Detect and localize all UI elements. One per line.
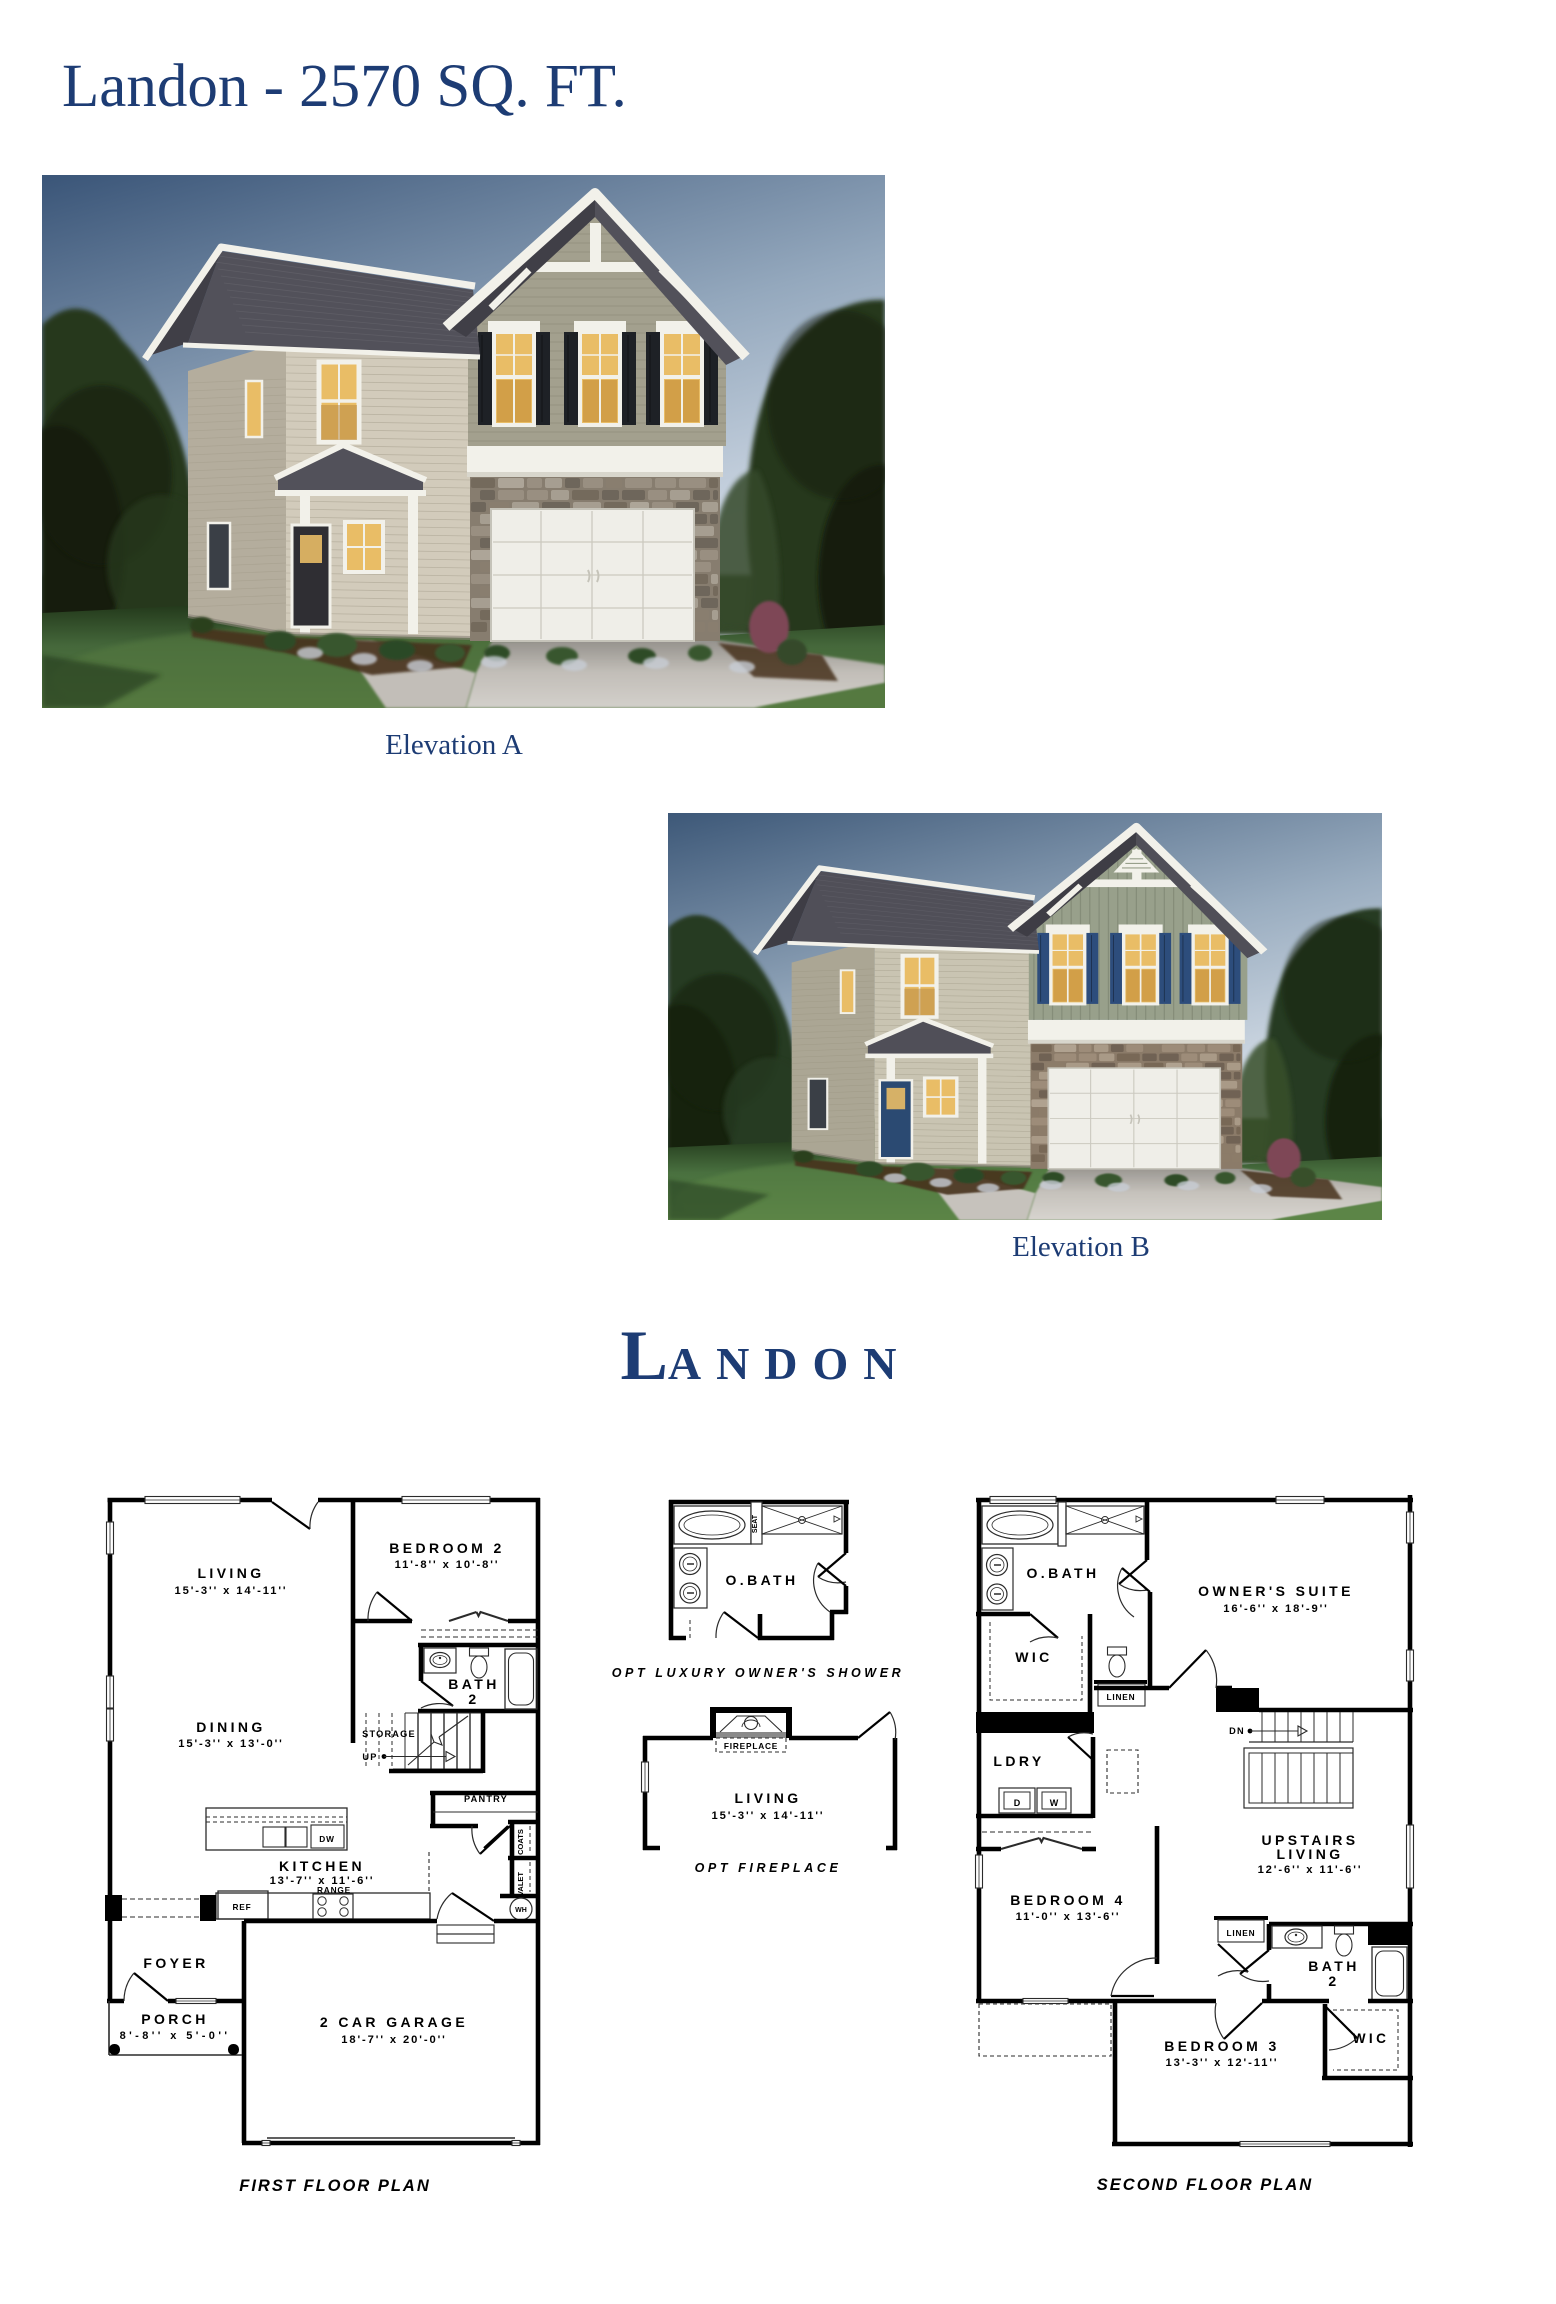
svg-text:FIRST FLOOR PLAN: FIRST FLOOR PLAN bbox=[239, 2177, 431, 2195]
svg-text:11'-8'' x 10'-8'': 11'-8'' x 10'-8'' bbox=[395, 1559, 500, 1571]
svg-text:WIC: WIC bbox=[1353, 2031, 1390, 2046]
svg-text:DW: DW bbox=[319, 1834, 334, 1844]
svg-text:STORAGE: STORAGE bbox=[362, 1729, 416, 1739]
svg-text:18'-7'' x 20'-0'': 18'-7'' x 20'-0'' bbox=[341, 2034, 446, 2046]
svg-text:11'-0'' x 13'-6'': 11'-0'' x 13'-6'' bbox=[1016, 1911, 1121, 1923]
svg-text:BEDROOM 2: BEDROOM 2 bbox=[389, 1540, 504, 1556]
svg-text:13'-3'' x 12'-11'': 13'-3'' x 12'-11'' bbox=[1166, 2057, 1279, 2069]
svg-text:BATH: BATH bbox=[1308, 1958, 1359, 1974]
svg-text:DN: DN bbox=[1229, 1726, 1245, 1736]
svg-text:VALET: VALET bbox=[516, 1872, 525, 1896]
svg-text:WIC: WIC bbox=[1015, 1649, 1052, 1665]
svg-text:SECOND FLOOR PLAN: SECOND FLOOR PLAN bbox=[1097, 2176, 1313, 2194]
svg-text:15'-3'' x 14'-11'': 15'-3'' x 14'-11'' bbox=[175, 1585, 288, 1597]
svg-text:LIVING: LIVING bbox=[197, 1565, 264, 1581]
svg-text:LINEN: LINEN bbox=[1227, 1928, 1256, 1938]
svg-text:FIREPLACE: FIREPLACE bbox=[724, 1741, 778, 1751]
svg-text:PANTRY: PANTRY bbox=[464, 1794, 508, 1804]
svg-text:WH: WH bbox=[515, 1907, 527, 1914]
svg-text:PORCH: PORCH bbox=[141, 2011, 209, 2027]
svg-text:2: 2 bbox=[468, 1691, 479, 1707]
svg-text:BATH: BATH bbox=[448, 1676, 499, 1692]
svg-text:LIVING: LIVING bbox=[734, 1790, 801, 1806]
svg-text:D: D bbox=[1014, 1798, 1021, 1808]
svg-text:FOYER: FOYER bbox=[143, 1955, 208, 1971]
svg-text:12'-6'' x 11'-6'': 12'-6'' x 11'-6'' bbox=[1258, 1864, 1363, 1876]
svg-text:16'-6'' x 18'-9'': 16'-6'' x 18'-9'' bbox=[1223, 1603, 1328, 1615]
svg-text:15'-3'' x 13'-0'': 15'-3'' x 13'-0'' bbox=[178, 1738, 283, 1750]
svg-text:W: W bbox=[1050, 1798, 1059, 1808]
svg-text:15'-3'' x 14'-11'': 15'-3'' x 14'-11'' bbox=[712, 1810, 825, 1822]
svg-text:SEAT: SEAT bbox=[752, 1514, 759, 1533]
svg-text:LDRY: LDRY bbox=[993, 1753, 1044, 1769]
svg-text:8'-8'' x 5'-0'': 8'-8'' x 5'-0'' bbox=[120, 2030, 231, 2042]
svg-text:LINEN: LINEN bbox=[1107, 1692, 1136, 1702]
svg-text:O.BATH: O.BATH bbox=[725, 1572, 798, 1588]
svg-text:O.BATH: O.BATH bbox=[1026, 1565, 1099, 1581]
svg-text:2 CAR GARAGE: 2 CAR GARAGE bbox=[320, 2014, 468, 2030]
svg-text:COATS: COATS bbox=[516, 1829, 525, 1855]
svg-text:KITCHEN: KITCHEN bbox=[279, 1858, 365, 1874]
svg-text:LIVING: LIVING bbox=[1276, 1846, 1343, 1862]
svg-text:UP: UP bbox=[362, 1752, 377, 1762]
svg-text:BEDROOM 3: BEDROOM 3 bbox=[1164, 2038, 1279, 2054]
svg-text:DINING: DINING bbox=[196, 1719, 265, 1735]
svg-text:BEDROOM 4: BEDROOM 4 bbox=[1010, 1892, 1125, 1908]
svg-text:OWNER'S SUITE: OWNER'S SUITE bbox=[1198, 1583, 1354, 1599]
svg-text:REF: REF bbox=[233, 1902, 252, 1912]
svg-text:OPT FIREPLACE: OPT FIREPLACE bbox=[695, 1861, 842, 1875]
svg-text:2: 2 bbox=[1328, 1973, 1339, 1989]
svg-text:OPT LUXURY OWNER'S SHOWER: OPT LUXURY OWNER'S SHOWER bbox=[612, 1666, 905, 1680]
